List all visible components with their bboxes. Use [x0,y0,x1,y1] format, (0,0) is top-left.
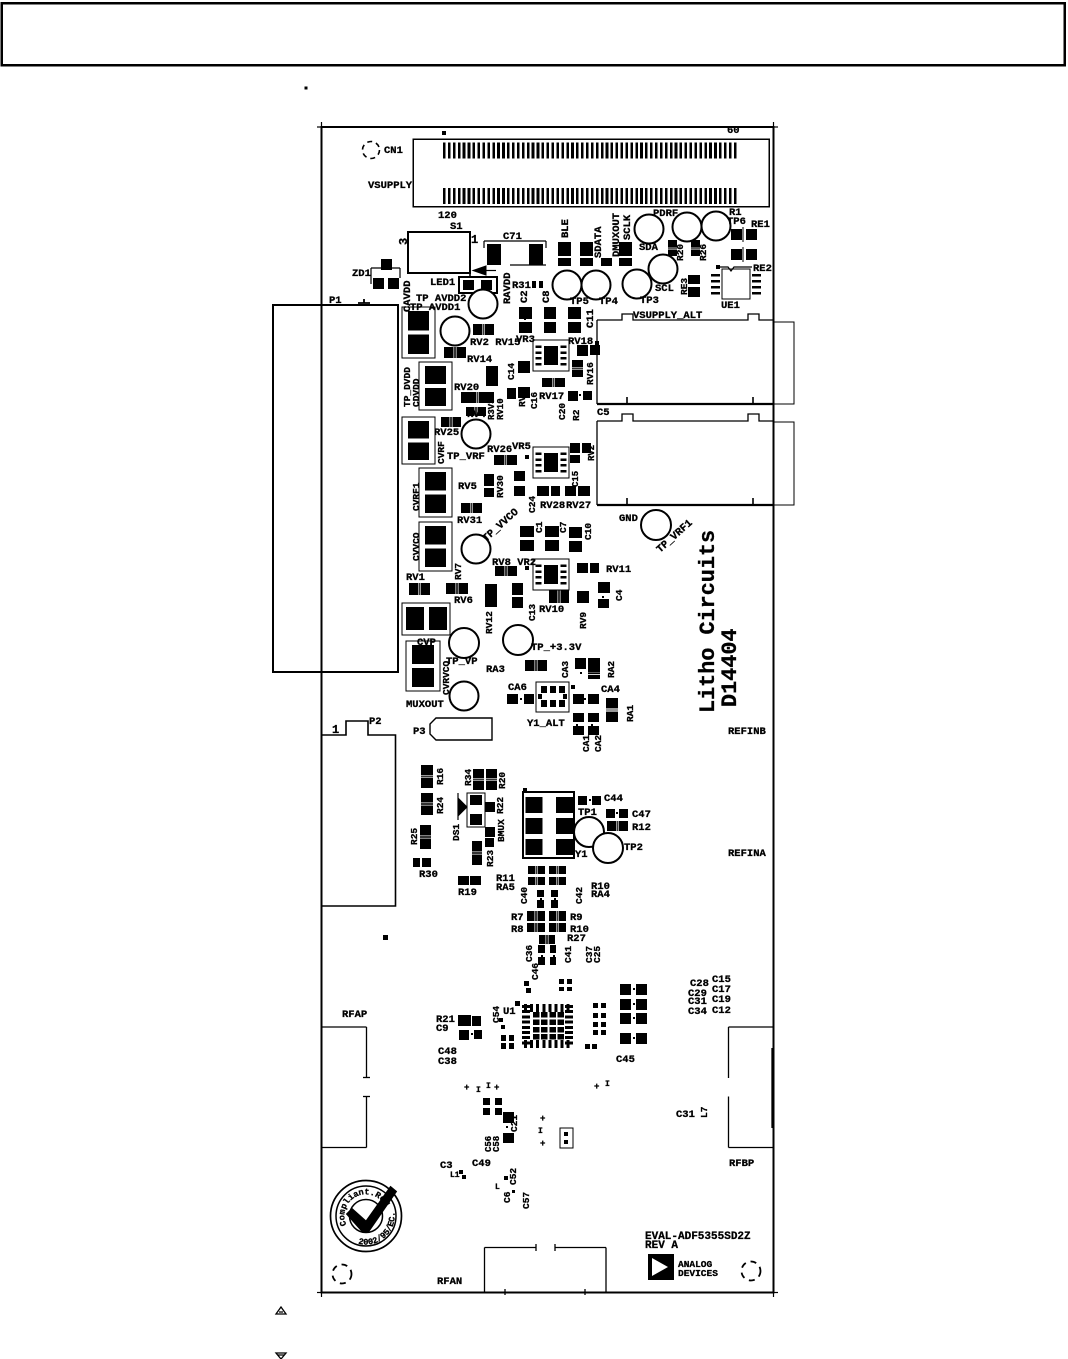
svg-text:I: I [538,1127,543,1136]
svg-text:R16: R16 [435,768,446,785]
svg-text:RV11: RV11 [606,564,631,576]
svg-text:C5: C5 [597,407,610,419]
svg-text:R8: R8 [511,924,524,936]
svg-text:CVRF: CVRF [436,441,447,464]
svg-text:R9: R9 [570,912,583,924]
svg-text:C13: C13 [527,604,538,621]
svg-text:P1: P1 [329,295,342,307]
svg-text:C36: C36 [524,945,535,962]
svg-text:C46: C46 [530,963,541,980]
svg-text:REFINB: REFINB [728,726,767,738]
svg-text:C31: C31 [676,1109,695,1121]
svg-text:P2: P2 [369,716,382,728]
svg-text:R30: R30 [419,869,438,881]
svg-text:MUXOUT: MUXOUT [406,699,444,711]
svg-text:C58: C58 [492,1136,502,1152]
svg-text:C49: C49 [472,1158,491,1170]
svg-text:R2: R2 [571,409,582,421]
svg-text:RV26: RV26 [487,444,512,456]
svg-text:TP6: TP6 [727,216,746,228]
svg-text:C34: C34 [688,1006,707,1018]
svg-text:VR5: VR5 [512,441,531,453]
svg-text:C44: C44 [604,793,623,805]
svg-text:RV2 RV15: RV2 RV15 [470,337,520,349]
svg-text:C40: C40 [519,887,530,904]
svg-text:RV2: RV2 [587,445,597,461]
svg-text:CA4: CA4 [601,684,620,696]
svg-text:BMUX: BMUX [496,819,507,842]
svg-text:SCL: SCL [655,283,674,295]
svg-text:TP2: TP2 [624,842,643,854]
svg-text:R31: R31 [512,280,531,292]
svg-text:C8: C8 [541,290,553,303]
svg-text:C57: C57 [521,1192,532,1209]
svg-text:TP3: TP3 [640,295,659,307]
svg-text:I: I [476,1086,481,1095]
svg-text:RV14: RV14 [467,354,492,366]
svg-text:RA4: RA4 [591,889,610,901]
svg-text:R20: R20 [497,772,508,789]
svg-text:C15: C15 [571,471,581,487]
svg-text:TP5: TP5 [570,296,589,308]
svg-text:S1: S1 [450,221,463,233]
svg-text:RA5: RA5 [496,882,515,894]
svg-text:L1: L1 [450,1171,460,1180]
svg-text:C10: C10 [583,523,594,540]
svg-text:C42: C42 [574,887,585,904]
svg-text:TP4: TP4 [599,296,618,308]
svg-text:R22: R22 [495,797,506,814]
svg-text:Y1: Y1 [575,849,588,861]
svg-text:CVRF1: CVRF1 [411,482,422,511]
svg-text:TP_+3.3V: TP_+3.3V [531,642,582,654]
svg-text:RE2: RE2 [753,263,772,275]
svg-text:RV28: RV28 [540,500,565,512]
svg-text:R23: R23 [485,850,496,867]
svg-text:R27: R27 [567,933,586,945]
svg-text:CA6: CA6 [508,682,527,694]
svg-text:DS1: DS1 [451,824,462,841]
svg-text:CA1: CA1 [581,735,592,752]
svg-text:L7: L7 [699,1106,710,1118]
svg-text:C20: C20 [557,403,568,420]
svg-text:L: L [495,1183,500,1192]
svg-text:RV10: RV10 [496,398,506,420]
svg-text:RV12: RV12 [484,611,495,634]
svg-text:C6: C6 [502,1191,513,1203]
svg-text:RV5: RV5 [458,481,477,493]
svg-text:UE1: UE1 [721,300,740,312]
svg-text:SDATA: SDATA [593,226,605,258]
svg-text:SCLK: SCLK [622,214,634,240]
svg-text:TP AVDD1: TP AVDD1 [410,302,460,314]
svg-text:C25: C25 [592,946,603,963]
svg-text:RV9: RV9 [578,612,589,629]
svg-text:SDA: SDA [639,242,659,254]
svg-text:RV7: RV7 [453,563,464,580]
svg-text:RA2: RA2 [606,661,617,678]
svg-text:LED1: LED1 [430,277,455,289]
svg-text:VSUPPLY: VSUPPLY [368,180,413,192]
svg-text:BLE: BLE [560,219,572,238]
svg-text:RV17: RV17 [539,391,564,403]
svg-text:REFINA: REFINA [728,848,767,860]
svg-text:C47: C47 [632,809,651,821]
svg-text:RV1: RV1 [406,572,425,584]
svg-text:I: I [605,1080,610,1089]
svg-text:DEVICES: DEVICES [678,1268,718,1279]
svg-text:+: + [494,1083,499,1093]
svg-text:+: + [540,1114,545,1124]
svg-text:C12: C12 [712,1005,731,1017]
svg-text:CA2: CA2 [593,735,604,752]
svg-text:C4: C4 [614,589,625,601]
svg-text:C24: C24 [527,496,538,513]
svg-text:60: 60 [727,125,740,137]
svg-text:U1: U1 [503,1006,516,1018]
svg-text:R19: R19 [458,887,477,899]
svg-text:C2: C2 [519,290,531,303]
svg-text:CN1: CN1 [384,145,403,157]
svg-text:RFAN: RFAN [437,1276,462,1288]
svg-text:C9: C9 [436,1023,449,1035]
svg-text:CA3: CA3 [560,661,571,678]
svg-text:C38: C38 [438,1056,457,1068]
svg-text:RFBP: RFBP [729,1158,754,1170]
svg-text:D14404: D14404 [718,629,743,707]
svg-text:C41: C41 [563,946,574,963]
svg-text:C11: C11 [585,309,597,328]
svg-text:CDVDD: CDVDD [411,378,422,407]
svg-text:RV30: RV30 [495,475,506,498]
svg-text:1: 1 [471,233,478,247]
svg-text:R7: R7 [511,912,524,924]
svg-text:RFAP: RFAP [342,1009,367,1021]
svg-text:+: + [594,1082,599,1092]
svg-text:P3: P3 [413,726,426,738]
svg-text:I: I [486,1082,491,1091]
svg-text:REV A: REV A [645,1240,678,1252]
svg-text:R12: R12 [632,822,651,834]
svg-text:RA1: RA1 [625,705,636,722]
svg-text:RV6: RV6 [454,595,473,607]
svg-text:R24: R24 [435,797,446,814]
svg-text:C45: C45 [616,1054,635,1066]
svg-text:+: + [464,1083,469,1093]
svg-text:R34: R34 [463,769,474,786]
svg-text:CVVCO: CVVCO [411,532,422,561]
svg-text:C1: C1 [534,521,545,533]
svg-text:TP_VRF: TP_VRF [447,451,485,463]
svg-text:RV27: RV27 [566,500,591,512]
svg-text:GND: GND [619,513,638,525]
svg-text:RA3: RA3 [486,664,505,676]
svg-text:+: + [540,1139,545,1149]
svg-text:C7: C7 [558,521,569,533]
svg-text:RV16: RV16 [585,362,596,385]
svg-text:RV31: RV31 [457,515,482,527]
svg-text:ZD1: ZD1 [352,268,371,280]
svg-text:VR3: VR3 [516,334,535,346]
svg-text:C14: C14 [506,363,517,380]
svg-text:3: 3 [397,238,411,245]
svg-text:Y1_ALT: Y1_ALT [527,718,565,730]
svg-text:RV10: RV10 [539,604,564,616]
svg-text:R25: R25 [409,828,420,845]
svg-text:RV25: RV25 [434,427,459,439]
svg-text:C52: C52 [508,1168,519,1185]
